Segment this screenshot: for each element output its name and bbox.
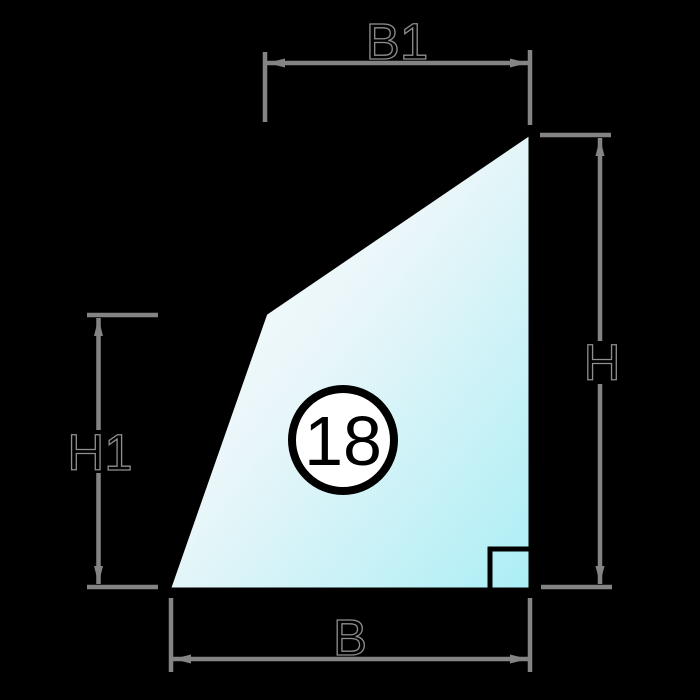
b-label: B (333, 609, 367, 666)
diagram-canvas: B1 H H1 B (0, 0, 700, 700)
b-arrow-right-icon (510, 655, 528, 664)
shape-number-badge: 18 (292, 389, 394, 491)
glass-pane-dimension-diagram: B1 H H1 B (0, 0, 700, 700)
b1-label: B1 (366, 13, 428, 70)
h1-arrow-up-icon (94, 318, 103, 336)
b-arrow-left-icon (173, 655, 191, 664)
h1-arrow-down-icon (94, 566, 103, 584)
h-arrow-up-icon (596, 138, 605, 156)
dimension-h1: H1 (67, 315, 158, 587)
dimension-b: B (171, 598, 530, 672)
h1-label: H1 (67, 424, 132, 481)
b1-arrow-right-icon (510, 59, 528, 68)
dimension-b1: B1 (265, 13, 530, 125)
h-arrow-down-icon (596, 566, 605, 584)
badge-number: 18 (304, 402, 382, 480)
glass-pane-shape (168, 132, 531, 590)
dimension-h: H (540, 135, 620, 587)
b1-arrow-left-icon (267, 59, 285, 68)
h-label: H (584, 334, 621, 391)
